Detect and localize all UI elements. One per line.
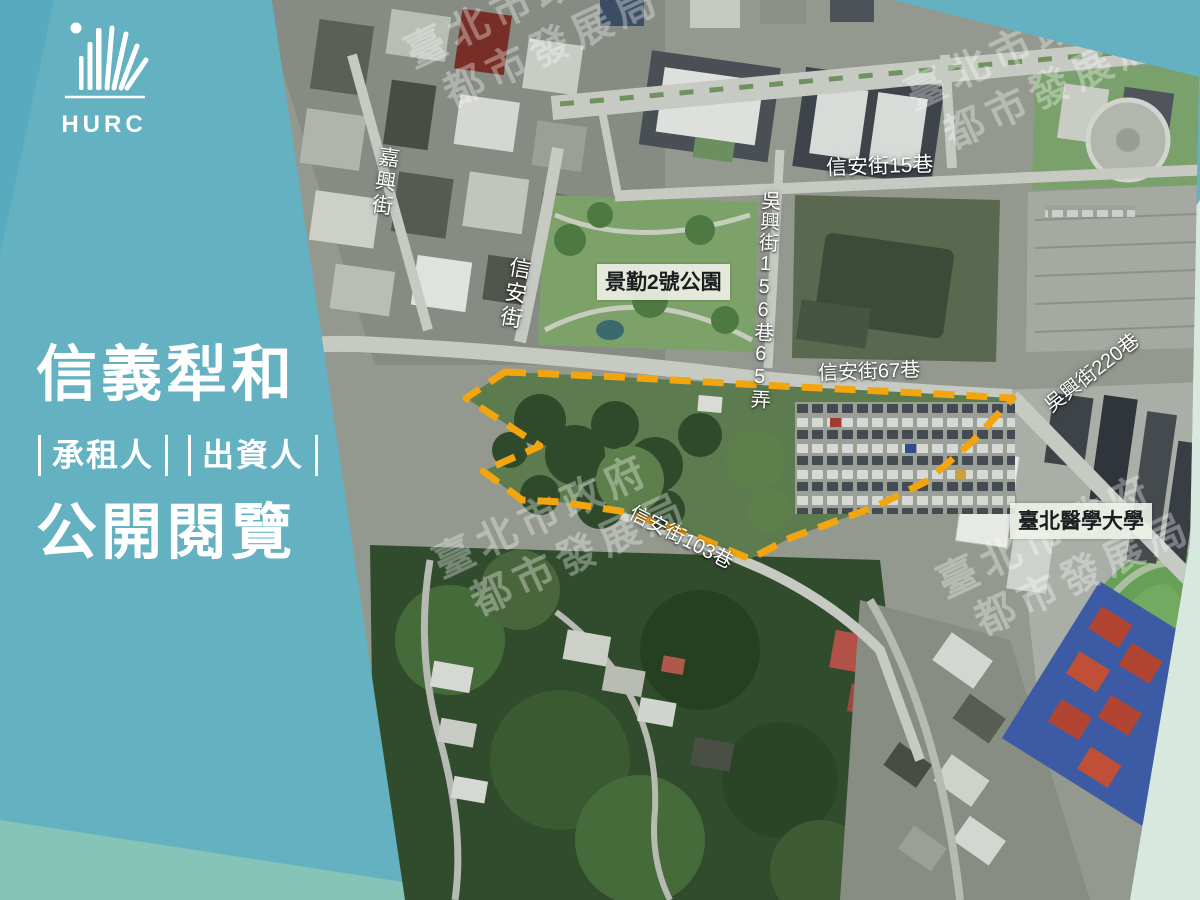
hurc-logo: HURC bbox=[56, 20, 152, 139]
role-badge-lessee: 承租人 bbox=[38, 435, 168, 476]
role-badges: 承租人 出資人 bbox=[38, 435, 336, 476]
street-label-xinan-15: 信安街15巷 bbox=[826, 154, 934, 180]
title-block: 信義犁和 承租人 出資人 公開閱覽 bbox=[36, 344, 336, 563]
slide: 臺北市政府 都市發展局 臺北市政府 都市發展局 臺北市政府 都市發展局 臺北市政… bbox=[0, 0, 1200, 900]
hurc-logo-mark bbox=[58, 20, 150, 102]
tmu-label: 臺北醫學大學 bbox=[1010, 503, 1152, 539]
page-title-top: 信義犁和 bbox=[36, 344, 336, 405]
hurc-logo-text: HURC bbox=[56, 111, 152, 139]
page-title-bottom: 公開閱覽 bbox=[36, 502, 336, 563]
park-label: 景勤2號公園 bbox=[597, 264, 730, 300]
street-label-xinan-67: 信安街67巷 bbox=[818, 360, 921, 385]
role-badge-investor: 出資人 bbox=[188, 435, 318, 476]
